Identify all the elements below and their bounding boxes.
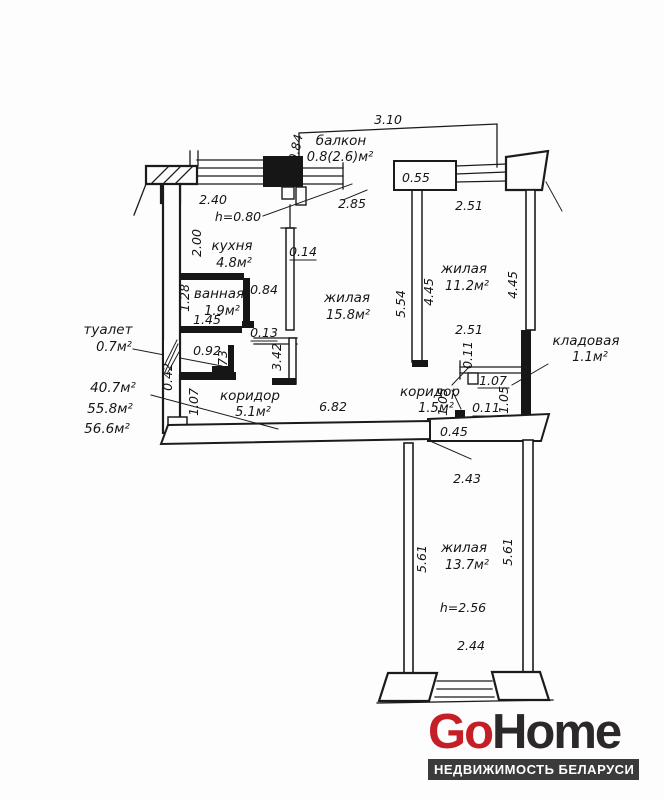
wall-pier-bottomleft — [379, 673, 437, 701]
logo-tagline: НЕДВИЖИМОСТЬ БЕЛАРУСИ — [428, 759, 639, 780]
dim-living2-top: 2.51 — [455, 198, 483, 213]
dim-window-right: 0.55 — [402, 170, 430, 185]
wall-living1-right — [412, 190, 422, 362]
room-corridor-area: 5.1м² — [235, 405, 271, 420]
dim-living3-bottom: 2.44 — [457, 638, 485, 653]
room-kitchen-name: кухня — [211, 238, 252, 254]
living3-group: 2.43 жилая 13.7м² 5.61 5.61 h=2.56 2.44 — [377, 440, 553, 703]
gohome-logo: GoHome НЕДВИЖИМОСТЬ БЕЛАРУСИ — [428, 708, 628, 780]
wall-toilet-right — [228, 345, 234, 369]
dim-kitchen-left: 2.00 — [189, 229, 204, 257]
wall-pier-topright — [506, 151, 548, 190]
floor-plan: 3.10 0.84 балкон 0.8(2.6)м² 2.40 h=0.80 … — [0, 0, 664, 800]
dim-living2-bottom: 2.51 — [455, 322, 483, 337]
wall-right-upper — [526, 190, 535, 330]
dim-living1-left: 3.42 — [269, 343, 284, 371]
dim-bath-left: 1.28 — [177, 284, 192, 312]
dim-living3-right: 5.61 — [500, 538, 515, 566]
dim-storage-wall-top: 0.11 — [460, 341, 475, 369]
balcony-door-pier — [263, 156, 306, 228]
dim-kitchen-top: 2.40 — [199, 192, 227, 207]
room-balcony-area: 0.8(2.6)м² — [307, 150, 374, 165]
dim-kitchen-sill: h=0.80 — [215, 209, 261, 224]
logo-home: Home — [492, 705, 620, 759]
logo-wordmark: GoHome — [428, 708, 628, 757]
storage-group: 0.11 1.07 кладовая 1.1м² 1.05 1.05 0.11 … — [400, 333, 619, 441]
room-living3-name: жилая — [440, 540, 487, 556]
room-living2-name: жилая — [440, 261, 487, 277]
dim-kitchen-door: 0.84 — [250, 282, 278, 297]
wall-bath-right — [243, 278, 250, 326]
room-toilet-area: 0.7м² — [96, 340, 132, 355]
dim-storage-wall-bottom: 0.11 — [472, 400, 500, 415]
total-overall: 56.6м² — [84, 421, 130, 437]
dim-balcony-width: 3.10 — [374, 112, 402, 127]
wall-pier-bottomright — [492, 672, 549, 700]
room-toilet-name: туалет — [84, 322, 134, 338]
room-living2-area: 11.2м² — [445, 279, 489, 294]
wall-living3-left — [404, 443, 413, 685]
dim-wall-left: 0.42 — [160, 363, 175, 391]
floor-plan-page: 3.10 0.84 балкон 0.8(2.6)м² 2.40 h=0.80 … — [0, 0, 664, 800]
room-corridor2-area: 1.5м² — [418, 401, 454, 416]
room-bathroom-name: ванная — [194, 286, 244, 302]
dim-living1-right: 5.54 — [393, 290, 408, 318]
dim-bath-bottom: 1.45 — [193, 312, 221, 327]
wall-corridor-bottom — [161, 421, 430, 444]
dim-wall-thick: 0.14 — [289, 244, 317, 259]
dim-ceiling-height: h=2.56 — [440, 600, 486, 615]
room-living1-area: 15.8м² — [326, 308, 370, 323]
dim-living1-top: 2.85 — [338, 196, 366, 211]
room-living1-name: жилая — [323, 290, 370, 306]
dim-corridor-left: 1.07 — [186, 388, 201, 416]
room-corridor2-name: коридор — [400, 384, 460, 400]
room-storage-area: 1.1м² — [572, 350, 608, 365]
wall-toilet-bottom — [180, 372, 236, 380]
room-living3-area: 13.7м² — [445, 558, 489, 573]
dim-corridor-width: 6.82 — [319, 399, 347, 414]
room-corridor-name: коридор — [220, 388, 280, 404]
dim-living2-right: 4.45 — [505, 271, 520, 299]
dim-living3-left: 5.61 — [414, 545, 429, 573]
dim-entry-door: 0.45 — [440, 424, 468, 439]
total-usable: 55.8м² — [87, 401, 133, 417]
bathroom-group: 1.28 ванная 1.9м² 1.45 0.13 — [177, 278, 297, 344]
room-storage-name: кладовая — [553, 333, 620, 349]
wall-living1-left-stub — [289, 338, 296, 384]
dim-living2-left: 4.45 — [421, 278, 436, 306]
balcony-group: 3.10 0.84 балкон 0.8(2.6)м² — [285, 112, 497, 167]
door-swing — [430, 441, 471, 459]
wall-kitchen-bottom — [180, 273, 244, 280]
dim-living3-top: 2.43 — [453, 471, 481, 486]
dim-storage-top: 1.07 — [479, 373, 507, 388]
wall-bath-bottom — [180, 326, 242, 333]
room-kitchen-area: 4.8м² — [216, 256, 252, 271]
logo-go: Go — [428, 705, 492, 759]
room-balcony-name: балкон — [316, 133, 367, 149]
wall-living3-right — [523, 440, 533, 685]
total-living: 40.7м² — [90, 380, 136, 396]
